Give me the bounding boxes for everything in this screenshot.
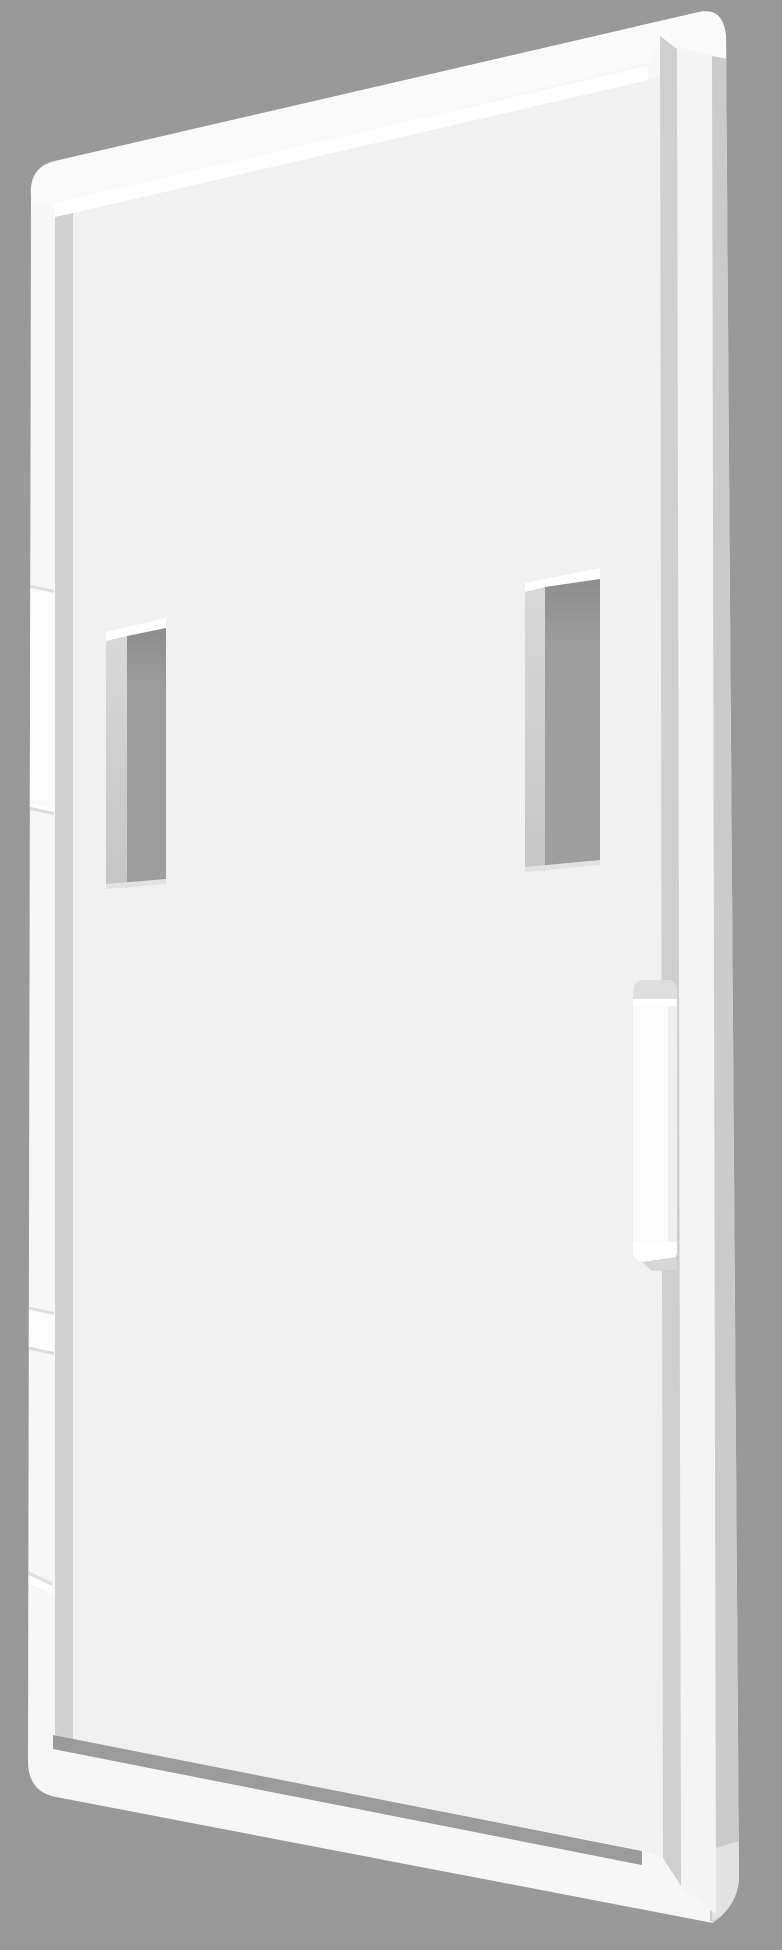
left-slot xyxy=(106,618,166,889)
left-tab2-band xyxy=(26,1309,54,1348)
tab-inner-shade xyxy=(668,999,677,1242)
left-tab1-band xyxy=(26,587,54,808)
front-face xyxy=(73,77,663,1858)
right-slot xyxy=(525,568,600,872)
render-canvas xyxy=(0,0,782,1950)
right-rim-band xyxy=(676,48,716,1914)
left-slot-inner-face xyxy=(106,636,127,888)
right-edge-tab xyxy=(633,980,677,1271)
right-slot-inner-face xyxy=(525,587,545,871)
plate-render xyxy=(0,0,782,1950)
tab-top-highlight xyxy=(633,999,677,1006)
left-groove-strip xyxy=(55,213,73,1743)
tab-top-bevel xyxy=(633,980,677,999)
right-slot-hole xyxy=(545,579,600,868)
plate-detail-layers xyxy=(26,0,752,1940)
left-slot-hole xyxy=(127,628,166,886)
